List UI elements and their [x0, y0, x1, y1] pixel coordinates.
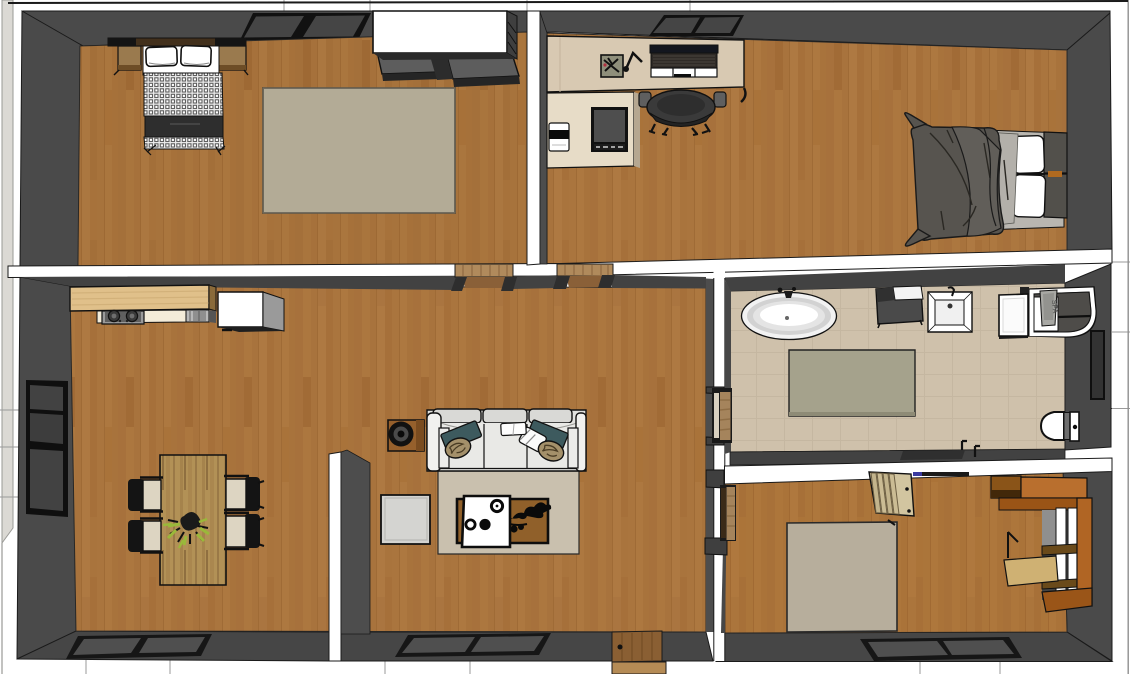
svg-text:SPA: SPA — [1050, 300, 1058, 314]
